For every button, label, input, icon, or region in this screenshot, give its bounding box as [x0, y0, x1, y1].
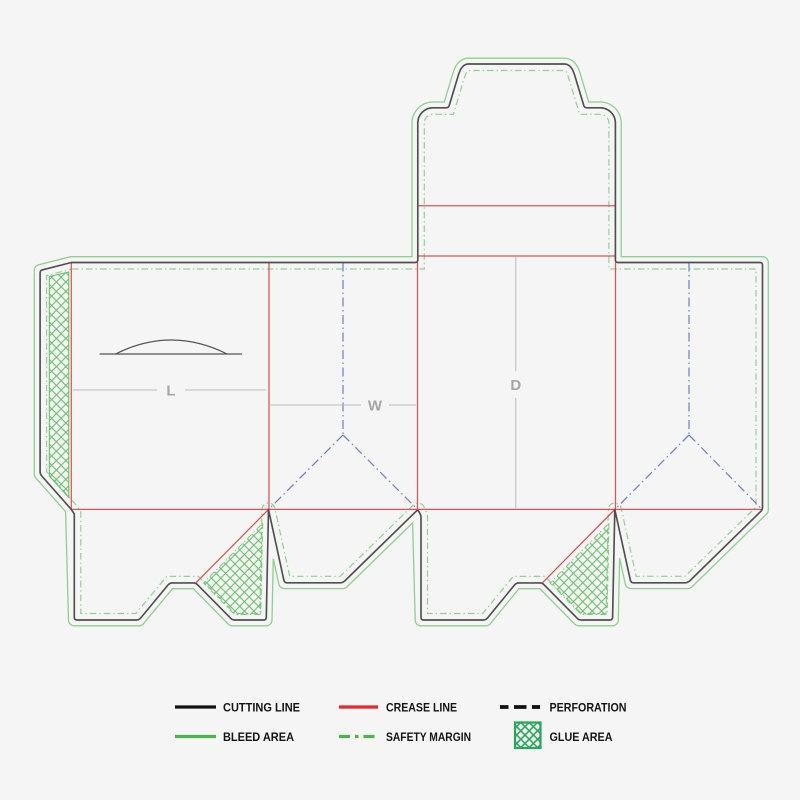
- svg-text:BLEED AREA: BLEED AREA: [223, 731, 295, 744]
- svg-text:CREASE LINE: CREASE LINE: [386, 702, 457, 715]
- svg-text:L: L: [166, 383, 175, 400]
- svg-text:PERFORATION: PERFORATION: [550, 702, 627, 715]
- svg-text:D: D: [510, 377, 521, 394]
- svg-text:W: W: [368, 398, 383, 415]
- svg-text:GLUE AREA: GLUE AREA: [550, 731, 614, 744]
- svg-text:SAFETY MARGIN: SAFETY MARGIN: [386, 731, 471, 744]
- svg-text:CUTTING LINE: CUTTING LINE: [223, 702, 300, 715]
